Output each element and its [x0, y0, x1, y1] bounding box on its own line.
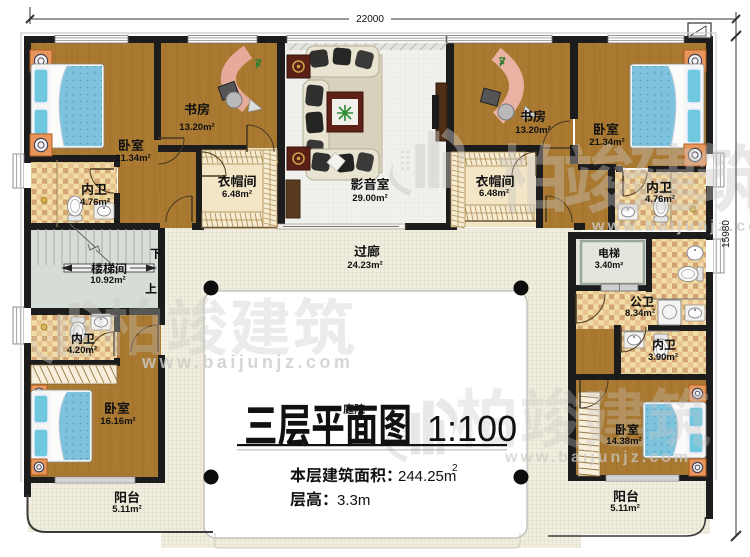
svg-text:3.40m²: 3.40m²	[595, 260, 624, 270]
svg-text:29.00m²: 29.00m²	[352, 193, 387, 204]
svg-text:14.38m²: 14.38m²	[606, 436, 641, 447]
svg-text:3.3m: 3.3m	[337, 492, 370, 509]
svg-text:16.16m²: 16.16m²	[100, 416, 135, 427]
svg-text:10.92m²: 10.92m²	[90, 275, 125, 286]
svg-text:www.baijunjz.com: www.baijunjz.com	[141, 352, 353, 372]
svg-text:4.76m²: 4.76m²	[80, 197, 110, 208]
svg-text:6.48m²: 6.48m²	[222, 189, 252, 200]
svg-text:1:100: 1:100	[427, 408, 517, 449]
svg-text:244.25m: 244.25m	[398, 468, 456, 485]
svg-text:8.34m²: 8.34m²	[625, 308, 655, 319]
svg-text:3.90m²: 3.90m²	[648, 352, 678, 363]
svg-text:21.34m²: 21.34m²	[115, 153, 150, 164]
svg-text:13.20m²: 13.20m²	[179, 122, 214, 133]
svg-text:5.11m²: 5.11m²	[610, 503, 640, 514]
svg-text:6.48m²: 6.48m²	[479, 188, 509, 199]
svg-text:www.baijunjz.com: www.baijunjz.com	[504, 449, 691, 466]
svg-text:24.23m²: 24.23m²	[347, 260, 382, 271]
svg-text:4.20m²: 4.20m²	[67, 345, 97, 356]
svg-text:15980: 15980	[721, 220, 732, 248]
svg-text:5.11m²: 5.11m²	[112, 504, 142, 515]
svg-text:2: 2	[452, 463, 458, 474]
svg-text:4.76m²: 4.76m²	[645, 194, 675, 205]
svg-text:22000: 22000	[356, 14, 384, 25]
svg-text:13.20m²: 13.20m²	[515, 125, 550, 136]
svg-text:21.34m²: 21.34m²	[589, 137, 624, 148]
